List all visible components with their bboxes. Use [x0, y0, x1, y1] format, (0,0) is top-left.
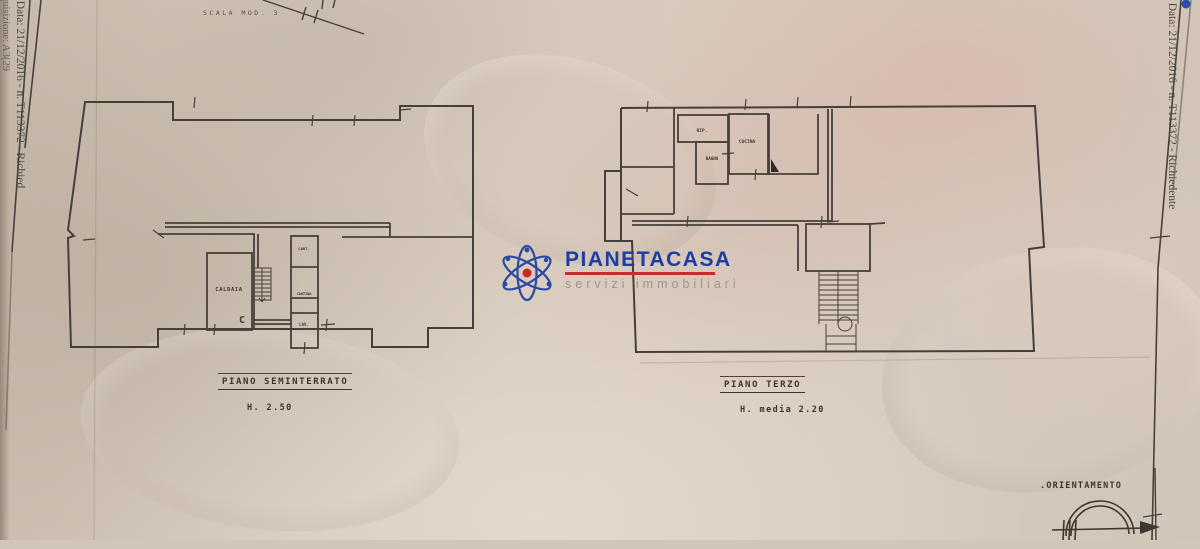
left-edge-caption-2: quisizione: A3(29	[0, 0, 11, 71]
room-label-cant: CANT.	[298, 246, 309, 251]
flue-mark	[771, 159, 779, 172]
outline-walls	[68, 102, 473, 347]
logo-red-underline	[565, 272, 715, 275]
door-mark-c: C	[239, 315, 245, 326]
pianetacasa-logo: PIANETACASA servizi immobiliari	[497, 243, 740, 303]
dimension-ticks	[83, 97, 411, 354]
edge-tick-marks	[1143, 236, 1170, 517]
logo-wordmark: PIANETACASA	[565, 249, 740, 270]
room-label-rip: RIP.	[697, 128, 708, 134]
scale-note: SCALA MOD. 3	[203, 9, 280, 17]
room-label-caldaia: CALDAIA	[215, 287, 242, 293]
right-edge-caption: - Data: 21/12/2016 - n. T113372 - Richie…	[1166, 0, 1178, 209]
stair-treads	[819, 271, 858, 352]
seminterrato-title: PIANO SEMINTERRATO	[218, 373, 352, 390]
terzo-height: H. media 2.20	[740, 405, 825, 415]
top-boundary-line	[263, 0, 364, 34]
terzo-floorplan: RIP. BAGNO CUCINA	[598, 84, 1068, 374]
room-label-cantina: CANTINA	[297, 292, 313, 296]
stair-treads	[254, 268, 271, 302]
logo-tagline: servizi immobiliari	[565, 277, 740, 291]
seminterrato-floorplan: CALDAIA CANT. CANTINA LAV. C	[55, 80, 485, 360]
left-edge-caption: - Data: 21/12/2016 - n. T113372 - Richie…	[14, 0, 26, 188]
logo-text-block: PIANETACASA servizi immobiliari	[565, 249, 740, 291]
terzo-title: PIANO TERZO	[720, 376, 805, 393]
room-label-lav: LAV.	[299, 322, 309, 327]
floorplan-photo: { "document": { "scale_note": "SCALA MOD…	[0, 0, 1200, 540]
compass-icon	[1048, 490, 1168, 540]
room-label-cucina: CUCINA	[739, 139, 756, 145]
room-label-bagno: BAGNO	[706, 156, 719, 161]
seminterrato-height: H. 2.50	[247, 403, 293, 413]
blue-corner-mark	[1182, 0, 1191, 9]
atom-icon	[497, 243, 557, 303]
